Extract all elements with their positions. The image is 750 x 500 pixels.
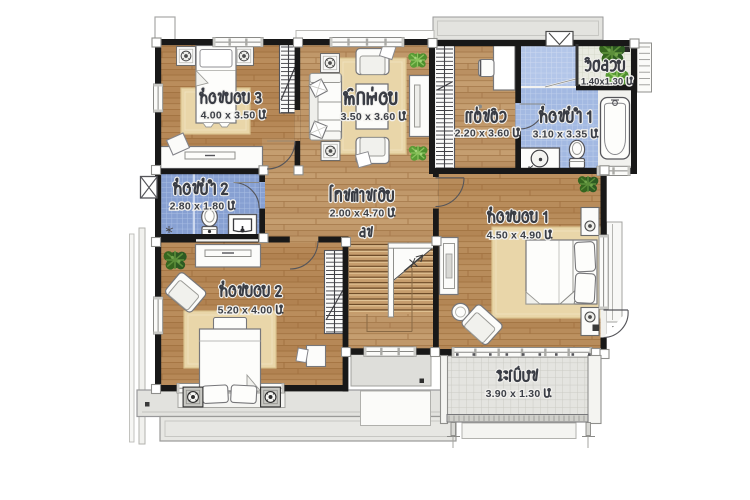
svg-text:4.00 x 3.50: 4.00 x 3.50 bbox=[201, 110, 256, 122]
svg-text:2.80 x 1.80: 2.80 x 1.80 bbox=[170, 201, 225, 213]
svg-text:3.10 x 3.35: 3.10 x 3.35 bbox=[533, 129, 588, 141]
svg-text:2.20 x 3.60: 2.20 x 3.60 bbox=[455, 128, 510, 140]
svg-text:3.50 x 3.60: 3.50 x 3.60 bbox=[341, 111, 396, 123]
svg-text:4.50 x 4.90: 4.50 x 4.90 bbox=[487, 230, 542, 242]
svg-text:5.20 x 4.00: 5.20 x 4.00 bbox=[218, 305, 273, 317]
svg-text:3.90 x 1.30: 3.90 x 1.30 bbox=[486, 388, 541, 400]
svg-text:2.00 x 4.70: 2.00 x 4.70 bbox=[330, 208, 385, 220]
svg-text:1.40x1.30: 1.40x1.30 bbox=[581, 77, 623, 88]
